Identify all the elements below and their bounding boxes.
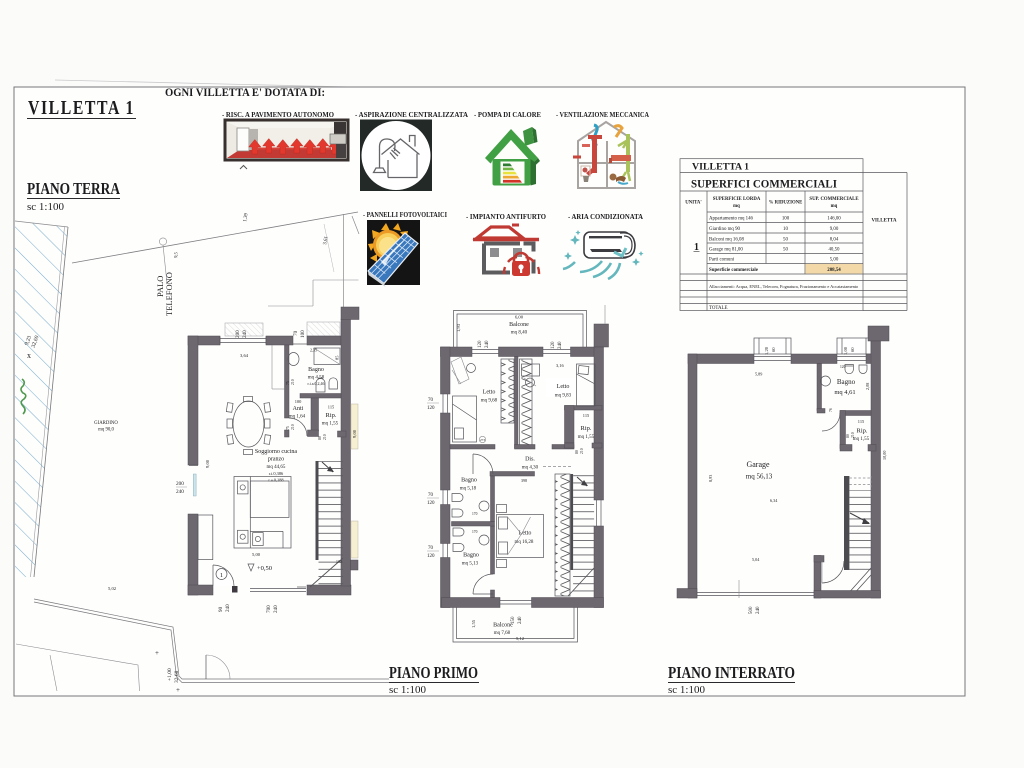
svg-text:PIANO INTERRATO: PIANO INTERRATO (668, 663, 795, 682)
svg-text:Superficie commerciale: Superficie commerciale (709, 268, 759, 273)
svg-text:273: 273 (480, 438, 485, 442)
svg-text:70: 70 (428, 546, 434, 551)
svg-text:GIARDINO: GIARDINO (94, 421, 118, 426)
svg-text:210: 210 (580, 448, 584, 454)
svg-text:Garage mq 81,00: Garage mq 81,00 (709, 247, 743, 252)
svg-text:240: 240 (485, 340, 490, 348)
svg-text:Garage: Garage (746, 460, 770, 469)
svg-text:SUPERFICI COMMERCIALI: SUPERFICI COMMERCIALI (691, 179, 837, 191)
svg-text:- ARIA CONDIZIONATA: - ARIA CONDIZIONATA (568, 212, 643, 221)
svg-text:mq 9,83: mq 9,83 (555, 394, 572, 399)
svg-text:sc 1:100: sc 1:100 (27, 201, 64, 213)
svg-text:- PANNELLI FOTOVOLTAICI: - PANNELLI FOTOVOLTAICI (363, 210, 447, 219)
svg-text:200: 200 (176, 481, 184, 487)
svg-text:- VENTILAZIONE MECCANICA: - VENTILAZIONE MECCANICA (556, 110, 649, 119)
svg-text:TOTALE: TOTALE (709, 306, 728, 311)
svg-text:x: x (27, 351, 31, 360)
svg-text:120: 120 (427, 406, 435, 411)
svg-text:80: 80 (318, 436, 322, 440)
svg-text:76: 76 (829, 408, 833, 412)
svg-text:mq 16,28: mq 16,28 (515, 540, 534, 545)
svg-text:Balcone: Balcone (509, 322, 529, 328)
svg-text:Letto: Letto (483, 390, 496, 396)
svg-text:Rip.: Rip. (856, 428, 867, 435)
svg-text:210: 210 (291, 424, 295, 430)
svg-text:Bagno: Bagno (461, 478, 477, 484)
svg-text:240: 240 (225, 604, 231, 612)
svg-text:398: 398 (521, 478, 527, 483)
svg-text:120: 120 (840, 365, 846, 369)
svg-text:500: 500 (749, 606, 754, 614)
svg-text:70: 70 (293, 330, 299, 336)
svg-text:mq: mq (733, 204, 740, 209)
svg-text:170: 170 (472, 512, 478, 516)
svg-text:210: 210 (851, 432, 855, 438)
svg-text:mq 7,68: mq 7,68 (494, 631, 511, 636)
svg-text:PIANO PRIMO: PIANO PRIMO (389, 663, 478, 682)
svg-text:240: 240 (176, 489, 184, 495)
svg-text:100: 100 (782, 217, 790, 222)
svg-text:5,00: 5,00 (830, 258, 839, 263)
svg-text:mq 90,0: mq 90,0 (98, 428, 114, 433)
svg-text:mq 1,55: mq 1,55 (578, 435, 595, 440)
svg-text:100: 100 (295, 399, 302, 404)
svg-text:75: 75 (286, 426, 290, 430)
svg-text:PIANO TERRA: PIANO TERRA (27, 179, 120, 198)
svg-text:mq 56,13: mq 56,13 (746, 473, 773, 481)
svg-text:90: 90 (218, 606, 224, 612)
svg-text:- ASPIRAZIONE CENTRALIZZATA: - ASPIRAZIONE CENTRALIZZATA (355, 110, 468, 119)
svg-text:Rip.: Rip. (325, 412, 336, 419)
svg-text:VILLETTA 1: VILLETTA 1 (692, 162, 750, 172)
svg-text:mq 1,55: mq 1,55 (853, 437, 870, 442)
svg-text:Balcone: Balcone (493, 623, 513, 629)
svg-text:mq 4,61: mq 4,61 (834, 389, 855, 396)
svg-text:mq 8,40: mq 8,40 (511, 331, 528, 336)
svg-text:TELEFONO: TELEFONO (164, 272, 174, 316)
svg-text:240: 240 (756, 606, 761, 614)
svg-text:120: 120 (551, 341, 556, 349)
svg-text:80: 80 (575, 450, 579, 454)
svg-text:+: + (176, 686, 180, 694)
svg-text:mq 1,64: mq 1,64 (289, 415, 306, 420)
svg-text:mq 9,68: mq 9,68 (481, 399, 498, 404)
svg-text:240: 240 (518, 616, 523, 624)
svg-text:Giardino mq 90: Giardino mq 90 (709, 227, 741, 232)
svg-text:Appartamento mq 146: Appartamento mq 146 (709, 217, 754, 222)
svg-text:- IMPIANTO ANTIFURTO: - IMPIANTO ANTIFURTO (466, 212, 546, 221)
svg-text:115: 115 (583, 413, 590, 418)
svg-text:50: 50 (783, 247, 788, 252)
svg-text:240: 240 (558, 341, 563, 349)
svg-text:mq 4,30: mq 4,30 (522, 466, 539, 471)
svg-text:210: 210 (323, 434, 327, 440)
svg-text:60: 60 (771, 347, 776, 352)
svg-text:UNITA': UNITA' (685, 201, 701, 206)
svg-text:OGNI VILLETTA E' DOTATA DI:: OGNI VILLETTA E' DOTATA DI: (165, 87, 325, 99)
svg-text:Anti: Anti (293, 406, 304, 412)
svg-text:sc 1:100: sc 1:100 (668, 684, 705, 696)
svg-text:9,00: 9,00 (830, 227, 839, 232)
svg-text:VILLETTA: VILLETTA (872, 218, 897, 224)
svg-text:mq 1,55: mq 1,55 (322, 422, 339, 427)
svg-text:Bagno: Bagno (837, 378, 856, 386)
svg-text:- RISC. A PAVIMENTO AUTONOMO: - RISC. A PAVIMENTO AUTONOMO (222, 110, 334, 119)
svg-text:146,00: 146,00 (827, 217, 841, 222)
svg-text:10: 10 (783, 227, 788, 232)
svg-text:700: 700 (266, 605, 272, 613)
svg-text:240: 240 (242, 330, 248, 338)
svg-text:70: 70 (428, 493, 434, 498)
svg-text:100: 100 (300, 330, 306, 338)
svg-text:80: 80 (846, 434, 850, 438)
svg-text:120: 120 (427, 501, 435, 506)
svg-text:Bagno: Bagno (463, 553, 479, 559)
svg-text:170: 170 (472, 530, 478, 534)
svg-text:120: 120 (427, 554, 435, 559)
svg-text:% RIDUZIONE: % RIDUZIONE (769, 201, 803, 206)
svg-text:SUP. COMMERCIALE: SUP. COMMERCIALE (809, 197, 858, 202)
svg-text:VILLETTA 1: VILLETTA 1 (28, 97, 135, 119)
svg-text:208,54: 208,54 (827, 268, 841, 273)
svg-text:210: 210 (291, 379, 295, 385)
svg-text:70: 70 (428, 398, 434, 403)
svg-text:60: 60 (850, 347, 855, 352)
svg-text:100: 100 (336, 560, 342, 564)
svg-text:mq 4,58: mq 4,58 (308, 376, 325, 381)
svg-text:40,50: 40,50 (828, 247, 840, 252)
svg-text:75: 75 (286, 381, 290, 385)
svg-text:sc 1:100: sc 1:100 (389, 684, 426, 696)
svg-text:8,04: 8,04 (830, 237, 839, 242)
svg-text:120: 120 (478, 340, 483, 348)
svg-text:32,68: 32,68 (174, 670, 180, 683)
svg-text:115: 115 (858, 419, 865, 424)
svg-text:Soggiorno cucina: Soggiorno cucina (255, 449, 297, 455)
svg-text:+0,50: +0,50 (257, 565, 272, 572)
svg-text:Parti comuni: Parti comuni (709, 258, 735, 263)
svg-text:pranzo: pranzo (268, 457, 284, 463)
svg-text:+: + (155, 649, 159, 657)
svg-text:+1,00: +1,00 (167, 668, 173, 681)
svg-text:mq 5,13: mq 5,13 (462, 562, 479, 567)
svg-text:mq 44,65: mq 44,65 (267, 465, 286, 470)
svg-text:Rip.: Rip. (580, 425, 591, 432)
svg-text:Balconi mq 16,08: Balconi mq 16,08 (709, 237, 744, 242)
svg-text:- POMPA DI CALORE: - POMPA DI CALORE (474, 110, 541, 119)
svg-text:mq: mq (831, 204, 838, 209)
svg-text:mq 5,18: mq 5,18 (460, 487, 477, 492)
svg-text:240: 240 (273, 605, 279, 613)
svg-text:50: 50 (783, 237, 788, 242)
svg-text:Letto: Letto (557, 384, 570, 390)
svg-text:Bagno: Bagno (308, 367, 324, 373)
svg-text:Dis.: Dis. (525, 457, 535, 463)
svg-text:1: 1 (220, 572, 223, 579)
svg-text:SUPERFICIE LORDA: SUPERFICIE LORDA (713, 197, 761, 202)
svg-text:200: 200 (235, 330, 241, 338)
svg-text:115: 115 (328, 405, 335, 410)
